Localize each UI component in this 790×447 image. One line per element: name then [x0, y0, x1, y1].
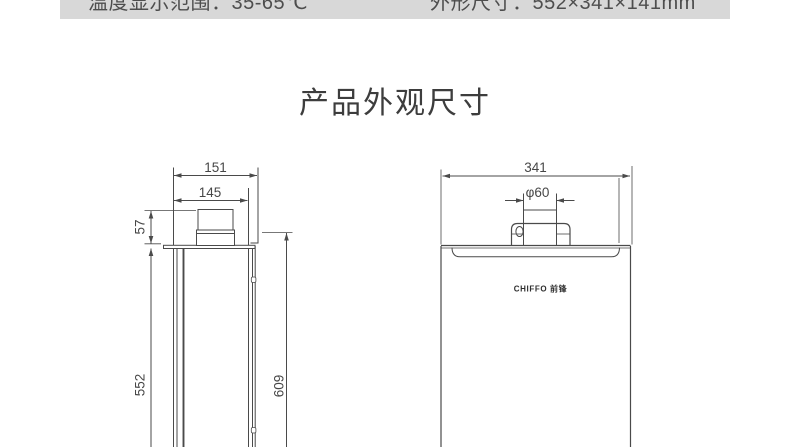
- bracket-keyhole: [516, 227, 523, 237]
- dim-57-label: 57: [133, 219, 148, 234]
- dimension-diagram: 151 145 57 552: [0, 0, 790, 447]
- brand-logo: CHIFFO 前锋: [514, 284, 568, 294]
- dim-609-label: 609: [272, 375, 287, 398]
- dim-552: 552: [133, 249, 154, 447]
- dim-341: 341: [441, 160, 632, 245]
- dim-151-label: 151: [204, 160, 227, 175]
- dim-phi60-label: φ60: [526, 185, 550, 200]
- dim-609: 609: [262, 233, 293, 447]
- dim-57: 57: [133, 211, 197, 244]
- dim-341-label: 341: [524, 160, 547, 175]
- dim-flue-diameter: φ60: [505, 185, 575, 203]
- product-dimension-page: 温度显示范围：35-65℃ 外形尺寸：552×341×141mm 产品外观尺寸: [0, 0, 790, 447]
- dim-552-label: 552: [133, 374, 148, 397]
- dim-145: 145: [174, 185, 248, 203]
- side-view-drawing: 151 145 57 552: [133, 160, 293, 447]
- front-view-drawing: 341 φ60 CHIFFO 前锋: [441, 160, 632, 447]
- dim-151: 151: [174, 160, 257, 178]
- dim-145-label: 145: [199, 185, 222, 200]
